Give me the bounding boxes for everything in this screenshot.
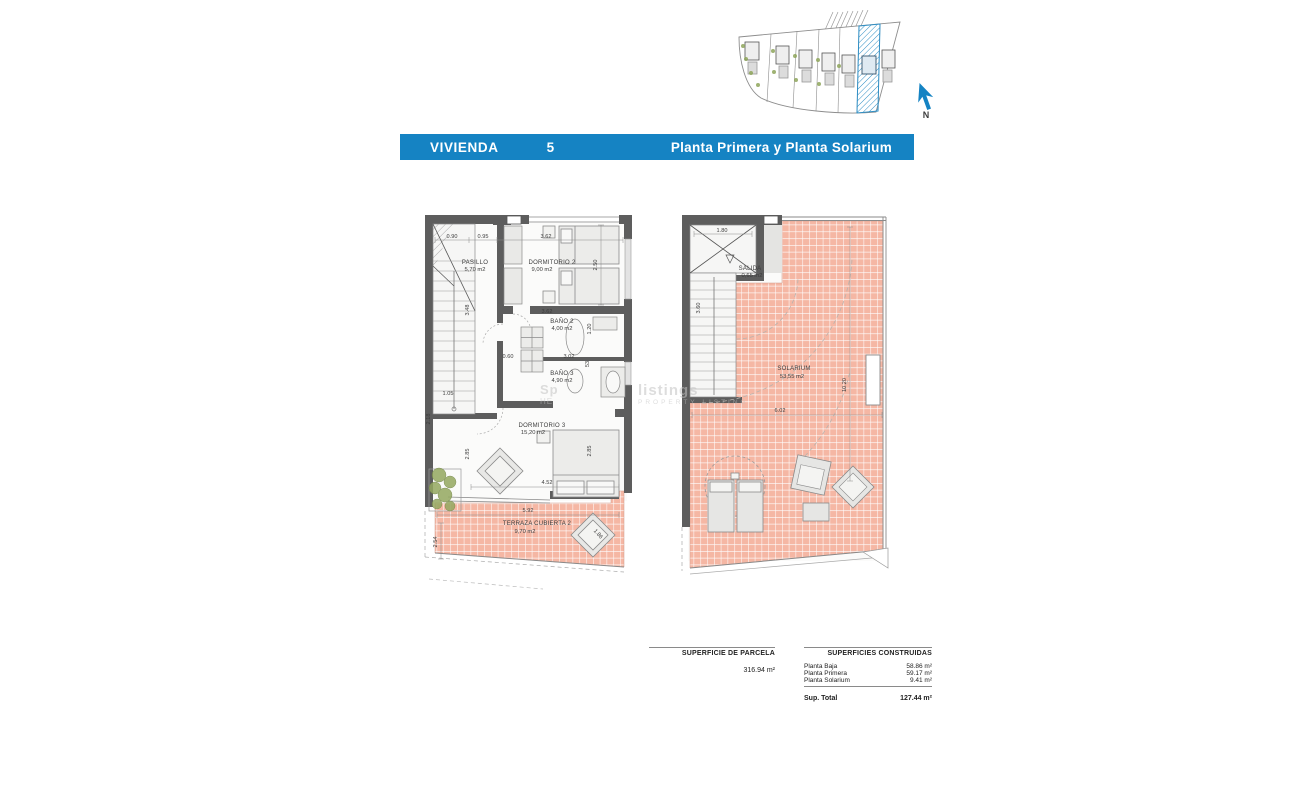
room-label: PASILLO (462, 260, 488, 266)
dim: 5.92 (523, 508, 534, 514)
dwelling-title: VIVIENDA5 (430, 140, 555, 155)
construidas-summary: SUPERFICIES CONSTRUIDAS Planta Baja 58.8… (804, 647, 932, 702)
row-label: Planta Solarium (804, 677, 850, 684)
room-label: SALIDA (739, 266, 762, 272)
brochure-page: N VIVIENDA5 Planta Primera y Planta Sola… (0, 0, 1315, 802)
floor-plan-primera: 0.90 0.95 3.62 2.50 3.48 3.62 1.20 0.60 … (423, 211, 635, 595)
room-label: DORMITORIO 2 (529, 260, 576, 266)
parcela-value: 316.94 m² (649, 667, 775, 674)
top-box (507, 216, 521, 224)
dim: 1.05 (443, 391, 454, 397)
staircase (433, 224, 475, 414)
total-value: 127.44 m² (900, 695, 932, 702)
total-label: Sup. Total (804, 695, 837, 702)
room-label: BAÑO 3 (550, 370, 574, 377)
room-area: 5,70 m2 (465, 267, 486, 273)
dim: 0.95 (478, 234, 489, 240)
dim: 2.18 (426, 414, 432, 425)
floor-subtitle: Planta Primera y Planta Solarium (671, 140, 892, 155)
dwelling-unit-number: 5 (547, 140, 555, 155)
dim: 3.62 (541, 234, 552, 240)
room-label: BAÑO 2 (550, 318, 574, 325)
window-right-2 (625, 362, 631, 385)
room-label: SOLARIUM (777, 366, 810, 372)
parcela-summary: SUPERFICIE DE PARCELA 316.94 m² (649, 647, 775, 674)
dim: 2.85 (465, 449, 471, 460)
dim: 6.02 (775, 408, 786, 414)
dim: 0.90 (447, 234, 458, 240)
row-value: 59.17 m² (906, 670, 932, 677)
door-gap (513, 306, 530, 314)
total-row: Sup. Total 127.44 m² (804, 695, 932, 702)
dim: 2.50 (593, 260, 599, 271)
dim: 3.60 (696, 303, 702, 314)
top-box (764, 216, 778, 224)
dim: 3.02 (564, 354, 575, 360)
table-row: Planta Primera 59.17 m² (804, 670, 932, 677)
site-plan-map: N (733, 10, 940, 122)
dim: 10.20 (842, 378, 848, 392)
construidas-heading: SUPERFICIES CONSTRUIDAS (804, 650, 932, 657)
construidas-rows: Planta Baja 58.86 m² Planta Primera 59.1… (804, 663, 932, 687)
dim: 2.54 (433, 537, 439, 548)
dim: 3.48 (465, 305, 471, 316)
room-area: 53,55 m2 (780, 374, 804, 380)
window-right-1 (625, 239, 631, 299)
dim: 53 (585, 361, 591, 367)
dim: 2.85 (587, 446, 593, 457)
room-area: 4,90 m2 (552, 378, 573, 384)
parcela-heading: SUPERFICIE DE PARCELA (649, 650, 775, 657)
room-area: 9,70 m2 (515, 529, 536, 535)
room-area: 9,00 m2 (532, 267, 553, 273)
table-row: Planta Solarium 9.41 m² (804, 677, 932, 684)
dwelling-label: VIVIENDA (430, 140, 499, 155)
row-value: 9.41 m² (910, 677, 932, 684)
north-arrow-icon: N (912, 80, 937, 120)
right-opening (866, 355, 880, 405)
dim: 0.60 (503, 354, 514, 360)
north-label: N (923, 110, 930, 120)
armchair (791, 455, 831, 495)
dim: 1.80 (717, 228, 728, 234)
row-value: 58.86 m² (906, 663, 932, 670)
side-table (803, 503, 829, 521)
room-label: DORMITORIO 3 (519, 423, 566, 429)
room-label: TERRAZA CUBIERTA 2 (503, 521, 572, 527)
table-row: Planta Baja 58.86 m² (804, 663, 932, 670)
row-label: Planta Baja (804, 663, 837, 670)
dim: 1.20 (587, 324, 593, 335)
row-label: Planta Primera (804, 670, 847, 677)
door-gap (497, 323, 503, 341)
room-area: 15,20 m2 (521, 430, 545, 436)
dim: 3.62 (542, 309, 553, 315)
title-bar: VIVIENDA5 Planta Primera y Planta Solari… (400, 134, 914, 160)
dim: 4.52 (542, 480, 553, 486)
room-area: 4,00 m2 (552, 326, 573, 332)
room-area: 0,65 m2 (742, 273, 763, 279)
floor-plan-solarium: 1.80 3.60 6.02 10.20 SALIDA 0,65 m2 SOLA… (680, 211, 894, 585)
highlighted-house (862, 56, 876, 74)
